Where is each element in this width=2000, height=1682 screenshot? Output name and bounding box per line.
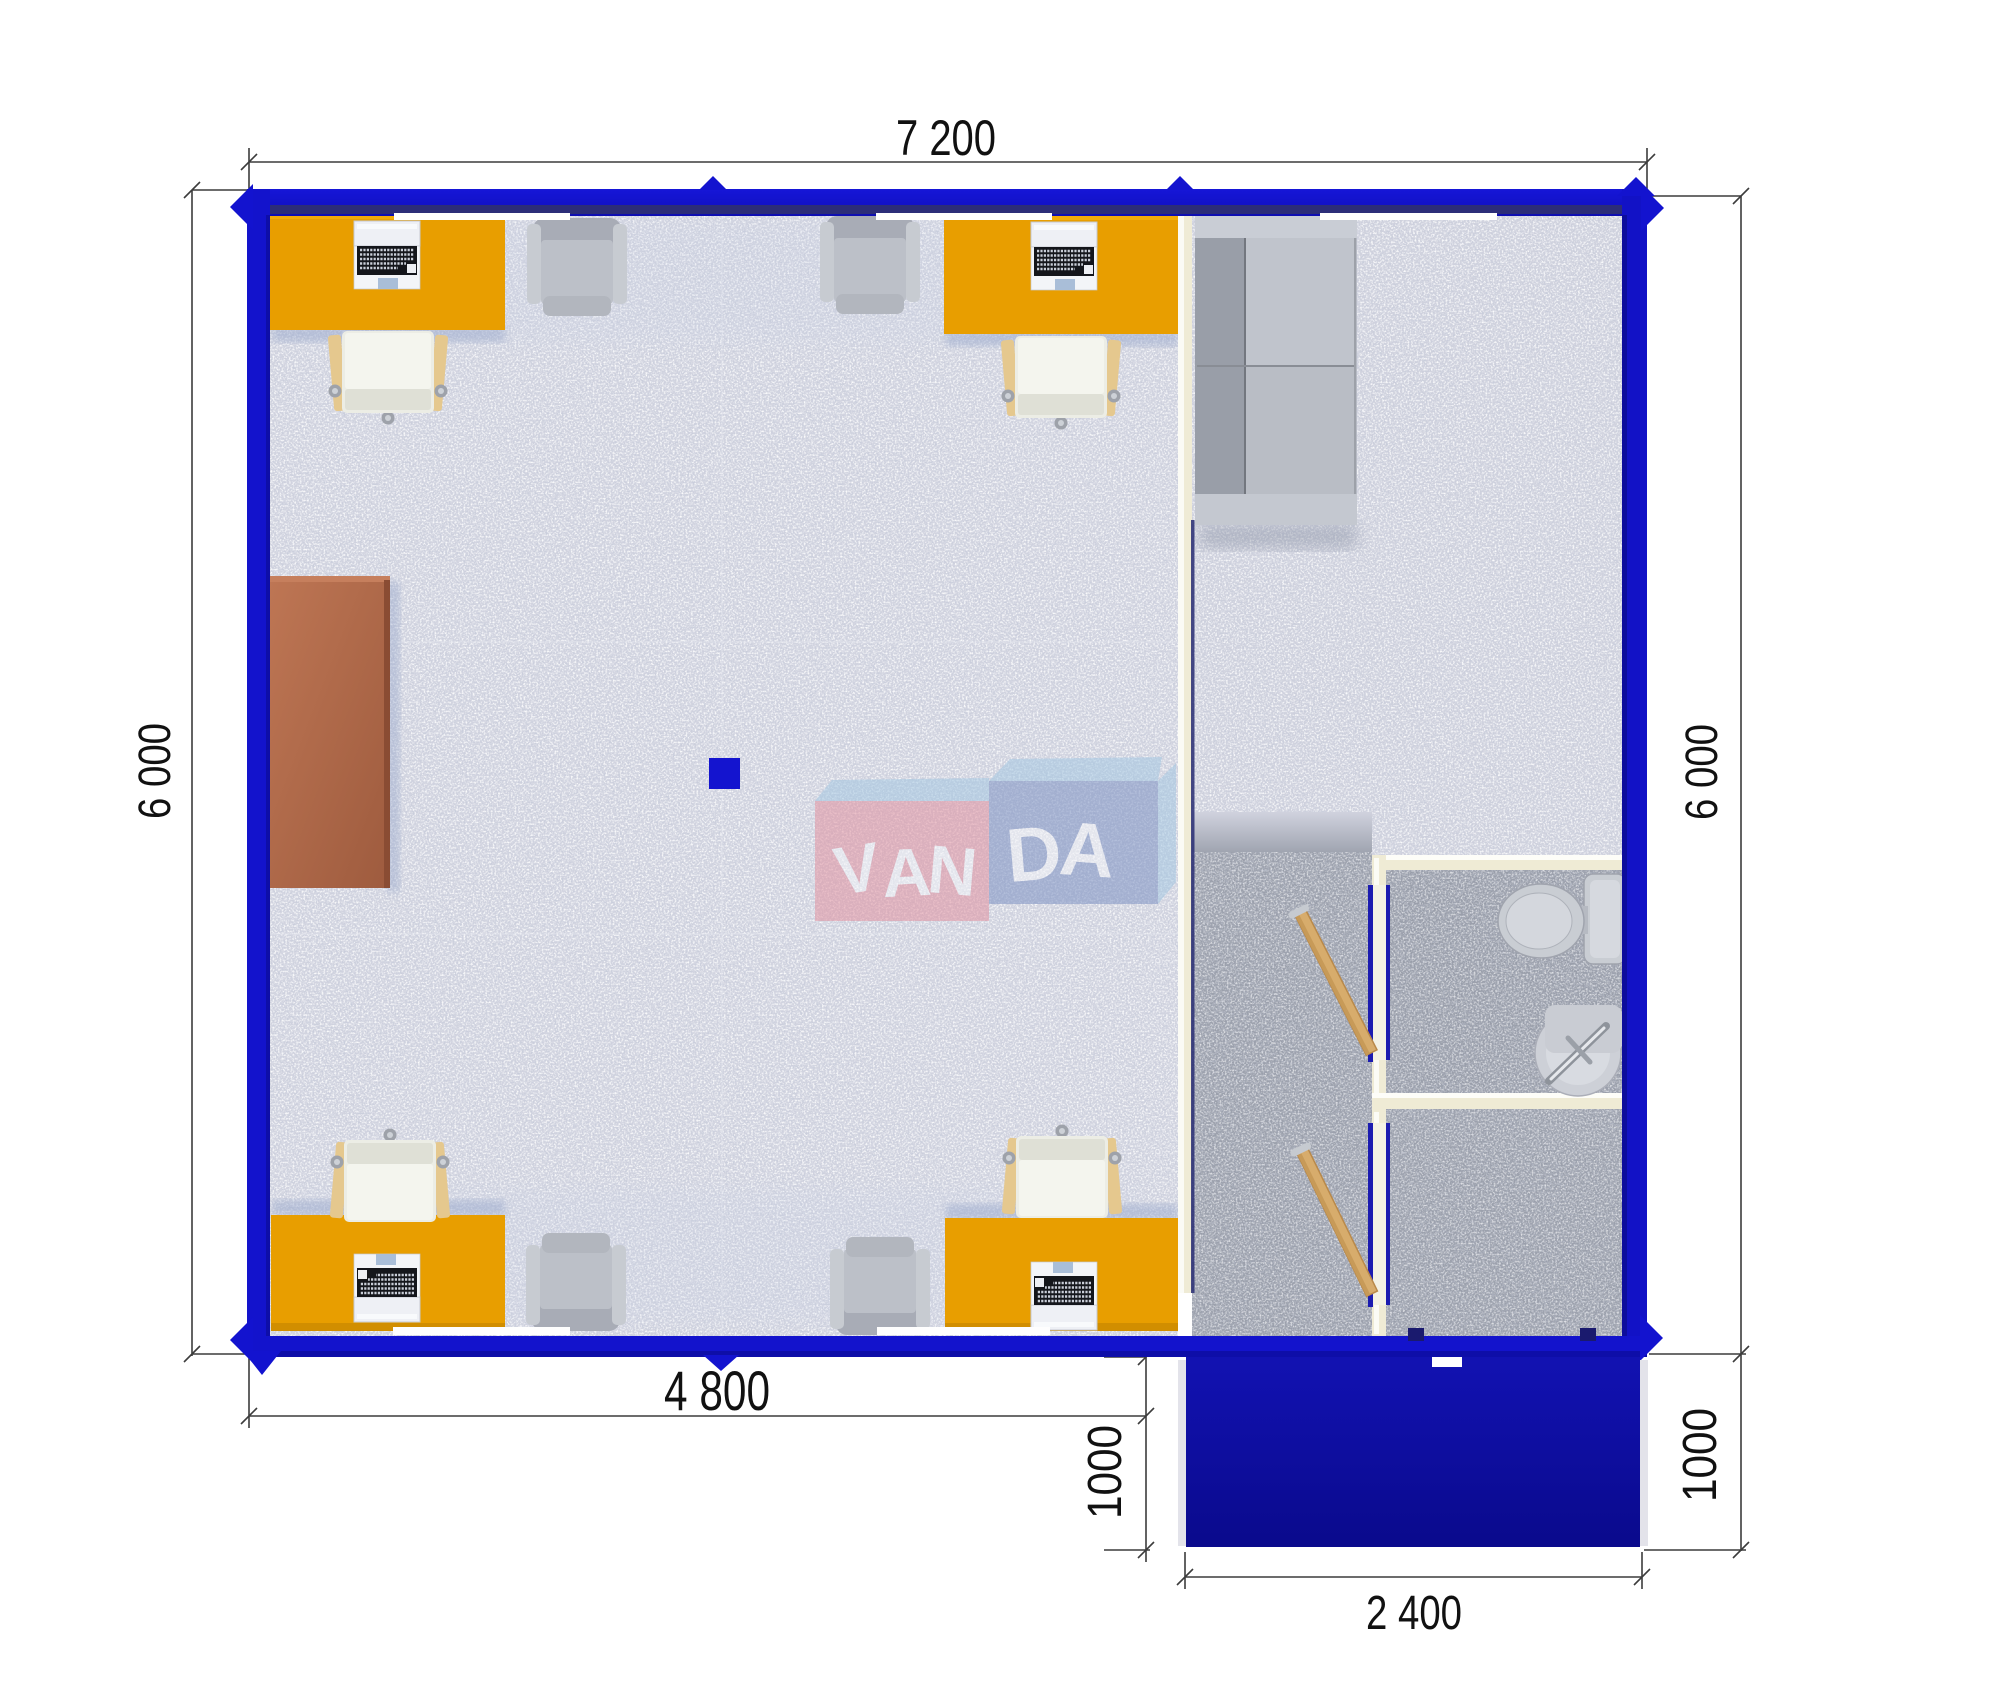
svg-text:6 000: 6 000 <box>1676 724 1727 820</box>
svg-text:A: A <box>1057 806 1118 895</box>
svg-text:N: N <box>925 831 981 911</box>
svg-text:D: D <box>1003 810 1065 899</box>
svg-text:7 200: 7 200 <box>896 110 996 166</box>
svg-text:2 400: 2 400 <box>1366 1587 1462 1640</box>
svg-text:4 800: 4 800 <box>664 1359 770 1422</box>
svg-text:1000: 1000 <box>1079 1425 1132 1519</box>
svg-text:1000: 1000 <box>1674 1408 1727 1502</box>
svg-text:6 000: 6 000 <box>129 723 180 819</box>
